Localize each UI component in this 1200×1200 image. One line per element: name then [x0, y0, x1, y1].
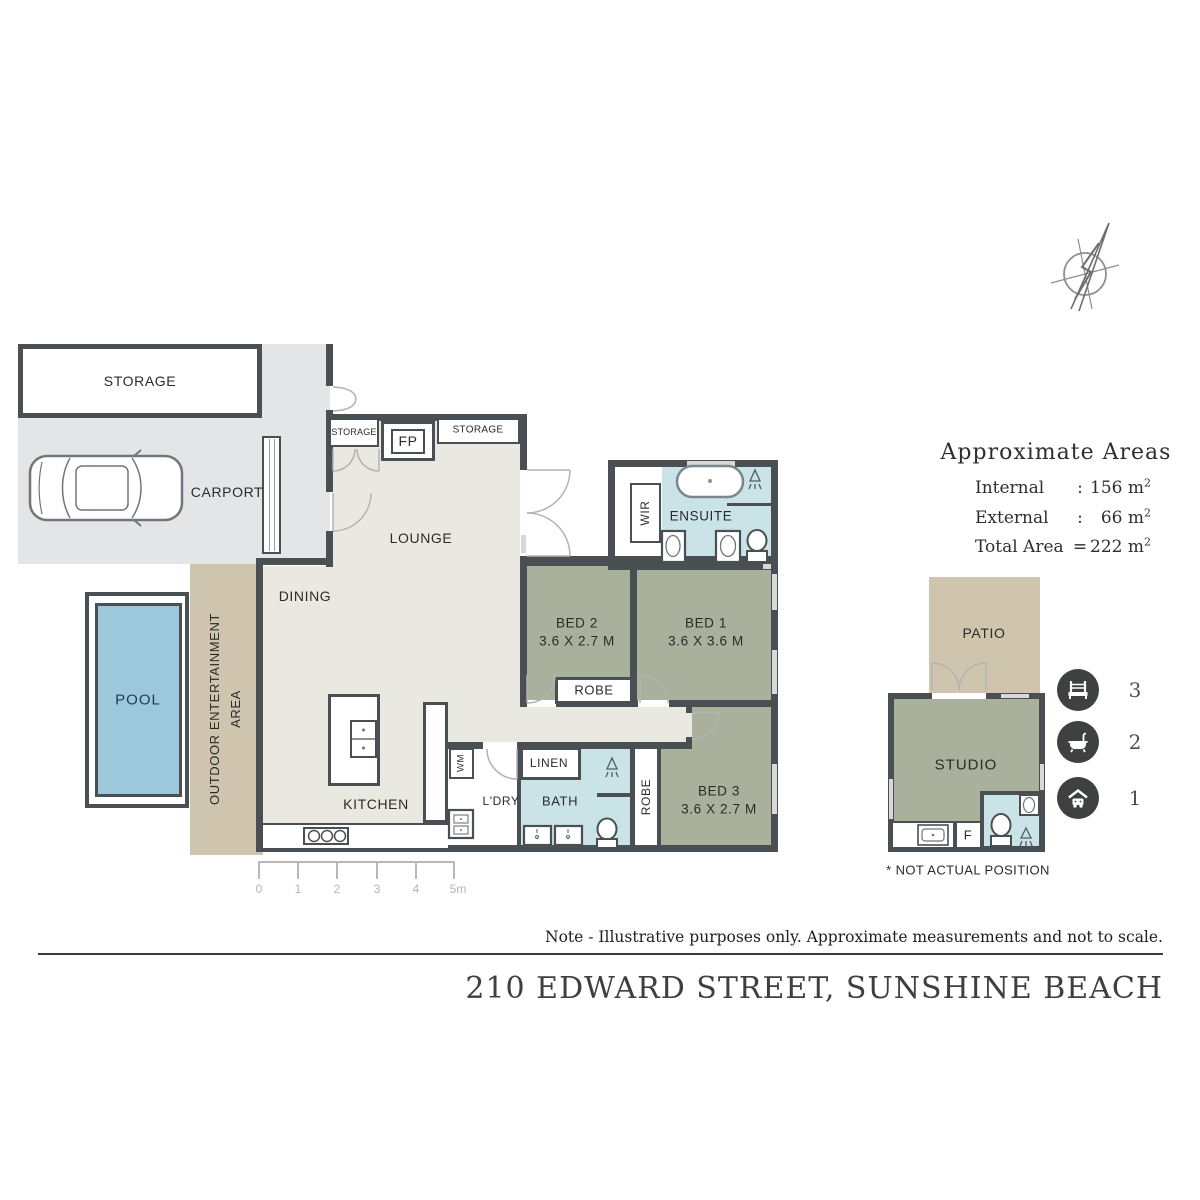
wall — [520, 414, 527, 470]
wall — [980, 791, 1040, 795]
areas-title: Approximate Areas — [930, 440, 1182, 465]
areas-label: Total Area — [975, 537, 1071, 557]
pool-label: POOL — [115, 692, 161, 709]
scale-label: 5m — [450, 882, 467, 896]
wall — [608, 563, 778, 570]
wall — [669, 700, 778, 707]
bath-count: 2 — [1129, 730, 1142, 754]
window — [521, 535, 526, 553]
divider-line — [38, 953, 1163, 955]
bed-count: 3 — [1129, 678, 1142, 702]
areas-separator: = — [1071, 537, 1089, 557]
carport-door-panel — [262, 436, 281, 554]
wall — [256, 558, 333, 565]
bed3-dims: 3.6 X 2.7 M — [681, 801, 757, 816]
linen-label: LINEN — [530, 756, 568, 770]
kitchen-bench — [263, 823, 448, 848]
areas-value: 222 m2 — [1089, 537, 1151, 557]
studio-bath-floor — [984, 795, 1039, 846]
disclaimer-note: Note - Illustrative purposes only. Appro… — [545, 928, 1163, 946]
fridge-label: F — [964, 828, 973, 843]
wm-label: WM — [456, 754, 467, 772]
fireplace-label: FP — [398, 433, 417, 449]
not-actual-position-note: * NOT ACTUAL POSITION — [886, 863, 1050, 878]
areas-row-external: External : 66 m2 — [975, 508, 1151, 528]
patio-label: PATIO — [963, 625, 1006, 641]
wall — [326, 344, 333, 386]
outdoor-area-label: OUTDOOR ENTERTAINMENT AREA — [205, 613, 247, 805]
wall — [686, 707, 692, 713]
storage-right-label: STORAGE — [453, 425, 504, 436]
car-count: 1 — [1129, 786, 1142, 810]
floor-plan: STORAGE CARPORT STORAGE FP STORAGE LOUNG… — [0, 0, 1200, 1200]
wall — [608, 460, 615, 563]
window — [772, 764, 777, 814]
scale-tick — [258, 861, 260, 879]
window — [772, 650, 777, 694]
carport-door-line — [274, 439, 275, 551]
wall — [326, 410, 333, 417]
bed1-name: BED 1 — [685, 615, 727, 630]
wall — [630, 749, 635, 845]
scale-label: 2 — [334, 882, 341, 896]
scale-label: 4 — [413, 882, 420, 896]
window — [687, 461, 735, 466]
ensuite-label: ENSUITE — [670, 509, 733, 524]
studio-kitchenette — [891, 821, 955, 849]
carport-door-line — [269, 439, 270, 551]
areas-row-total: Total Area = 222 m2 — [975, 537, 1151, 557]
wall — [520, 566, 527, 707]
scale-tick — [376, 861, 378, 879]
sup: 2 — [1144, 506, 1151, 519]
car-garage-icon — [1057, 777, 1099, 819]
bed3-label: BED 3 3.6 X 2.7 M — [681, 782, 757, 817]
scale-bar — [258, 861, 455, 863]
scale-label: 3 — [374, 882, 381, 896]
window — [889, 779, 893, 819]
wall — [686, 737, 692, 744]
wall — [657, 749, 661, 845]
bed3-name: BED 3 — [698, 783, 740, 798]
bed1-label: BED 1 3.6 X 3.6 M — [668, 614, 744, 649]
wall — [520, 700, 525, 707]
wall — [727, 503, 771, 506]
areas-separator: : — [1071, 478, 1089, 498]
window — [1040, 764, 1044, 790]
sup: 2 — [1144, 476, 1151, 489]
page-title: 210 EDWARD STREET, SUNSHINE BEACH — [465, 971, 1163, 1006]
storage-building-label: STORAGE — [104, 373, 176, 389]
kitchen-bench-column — [423, 702, 448, 823]
outdoor-line2: AREA — [228, 690, 243, 728]
studio-label: STUDIO — [935, 757, 998, 774]
cooktop — [303, 827, 349, 845]
scale-tick — [297, 861, 299, 879]
kitchen-label: KITCHEN — [343, 796, 409, 812]
robe-label: ROBE — [574, 683, 613, 698]
breezeway-floor — [262, 344, 330, 418]
window — [1001, 694, 1029, 698]
carport-label: CARPORT — [191, 484, 263, 500]
areas-value: 156 m2 — [1089, 478, 1151, 498]
window — [772, 574, 777, 610]
scale-label: 0 — [256, 882, 263, 896]
storage-left-label: STORAGE — [331, 427, 376, 437]
bed2-name: BED 2 — [556, 615, 598, 630]
scale-tick — [415, 861, 417, 879]
bed-icon — [1057, 669, 1099, 711]
bed2-dims: 3.6 X 2.7 M — [539, 633, 615, 648]
robe-hall-label: ROBE — [639, 779, 653, 815]
hallway-floor — [448, 707, 692, 742]
laundry-sink — [449, 810, 473, 838]
carport-floor — [18, 418, 330, 564]
bath-label: BATH — [542, 794, 578, 809]
wall — [597, 793, 630, 797]
areas-label: Internal — [975, 478, 1071, 498]
bed1-dims: 3.6 X 3.6 M — [668, 633, 744, 648]
wall — [888, 693, 932, 699]
scale-tick — [453, 861, 455, 879]
areas-value: 66 m2 — [1089, 508, 1151, 528]
dining-label: DINING — [279, 588, 332, 604]
areas-label: External — [975, 508, 1071, 528]
kitchen-island — [328, 694, 380, 786]
laundry-label: L'DRY — [482, 794, 519, 808]
areas-separator: : — [1071, 508, 1089, 528]
wall — [256, 558, 263, 852]
sup: 2 — [1144, 535, 1151, 548]
wir-label: WIR — [638, 500, 652, 525]
scale-label: 1 — [295, 882, 302, 896]
lounge-label: LOUNGE — [390, 530, 453, 546]
bath-icon — [1057, 721, 1099, 763]
wall — [448, 845, 778, 852]
compass-icon — [1051, 223, 1119, 311]
areas-row-internal: Internal : 156 m2 — [975, 478, 1151, 498]
bed2-label: BED 2 3.6 X 2.7 M — [539, 614, 615, 649]
window — [763, 564, 771, 569]
scale-tick — [336, 861, 338, 879]
outdoor-line1: OUTDOOR ENTERTAINMENT — [207, 613, 222, 805]
